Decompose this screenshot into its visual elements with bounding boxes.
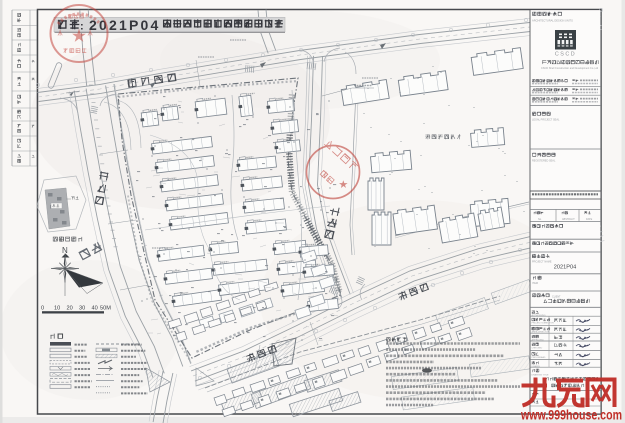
svg-text:PROJECT NAME: PROJECT NAME (532, 261, 552, 264)
svg-text:CSCD Shell Construction and De: CSCD Shell Construction and Development … (541, 67, 599, 70)
svg-text:2021P04: 2021P04 (554, 265, 576, 271)
svg-text:APPROVED: APPROVED (532, 339, 545, 342)
svg-text:ABSTRACT: ABSTRACT (562, 218, 575, 221)
svg-text:CHECKED: CHECKED (532, 347, 543, 349)
svg-text:50M: 50M (100, 305, 111, 311)
svg-text:AUTHORIZED: AUTHORIZED (532, 314, 547, 317)
svg-text:No.: No. (538, 218, 542, 221)
svg-text:10: 10 (54, 305, 60, 311)
svg-text:PROJECT DIRECTOR: PROJECT DIRECTOR (532, 323, 555, 325)
svg-text:CLIENT: CLIENT (552, 296, 561, 299)
svg-text:2021P04: 2021P04 (89, 17, 160, 33)
svg-text:40: 40 (92, 305, 98, 311)
svg-text:www.999house.com: www.999house.com (520, 408, 622, 423)
svg-text:30: 30 (79, 305, 85, 311)
svg-text:ITEM: ITEM (532, 282, 538, 285)
svg-text:REGISTERED SEAL: REGISTERED SEAL (532, 159, 556, 162)
svg-text:DRAWING TITLE: DRAWING TITLE (532, 374, 550, 377)
svg-text:CSCD: CSCD (555, 52, 576, 58)
svg-text:0: 0 (41, 305, 44, 311)
svg-text:20: 20 (67, 305, 73, 311)
svg-text:ARCHITECTURAL DESIGN UNITS: ARCHITECTURAL DESIGN UNITS (532, 18, 573, 22)
svg-text:LEGAL PROJECT SEAL: LEGAL PROJECT SEAL (532, 118, 560, 121)
svg-text::: : (80, 21, 84, 33)
svg-text:PROOFREAD: PROOFREAD (532, 356, 546, 359)
svg-text:DRAWN: DRAWN (532, 365, 541, 368)
svg-text:AREA DIRECTOR: AREA DIRECTOR (532, 331, 550, 334)
svg-text:DATE: DATE (586, 218, 593, 221)
